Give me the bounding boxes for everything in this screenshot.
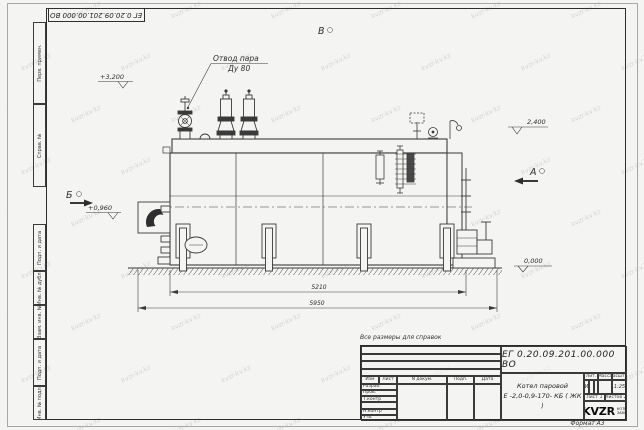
sign-col-dokum [397,384,447,422]
safety-valve-2 [240,89,258,139]
view-label-v: В [318,26,325,37]
drawing-sheet: kvzr-kv.kzkvzr-kv.kzkvzr-kv.kzkvzr-kv.kz… [0,0,644,430]
burner [138,202,170,264]
col-header-dokum: N докум. [397,376,447,384]
col-header-list: Лист [379,376,397,384]
reference-dimensions-note: Все размеры для справок [360,334,441,341]
title-block: Изм Лист N докум. Подп. Дата Разраб. Про… [360,345,626,420]
format-label: Формат А3 [545,420,630,427]
sheets-counter: Листов 2 [605,394,627,401]
view-label-a: А [529,167,537,178]
kvzr-logo-text: KVZR [584,405,615,418]
col-header-podp: Подп. [447,376,474,384]
dimension-overall-length: 5950 [309,300,324,307]
mass-value [598,380,612,394]
lit-header: Лит. [584,373,598,380]
logo-caption-line2: ЗАВОД РЗР [617,411,627,415]
col-header-izm: Изм [361,376,379,384]
change-row [361,354,501,362]
change-row [361,369,501,377]
steam-outlet-callout-line1: Отвод пара [213,54,259,63]
view-label-b: Б [66,190,73,201]
product-name-cell: Котел паровой Е -2,0-0,9-170- КБ ( ЖК ) [501,373,584,421]
product-name-line2: Е -2,0-0,9-170- КБ ( ЖК ) [502,392,583,412]
elevation-burner: +0,960 [88,204,112,212]
company-logo-cell: KVZR КОТЕЛЬНЫЙ ЗАВОД РЗР [584,401,627,421]
sheet-counter: Лист 1 [584,394,605,401]
sign-col-data [474,384,501,422]
change-row [361,346,501,354]
safety-valve-1 [217,89,235,139]
col-header-data: Дата [474,376,501,384]
manhole [185,237,207,253]
elevation-top: +3,200 [100,73,124,81]
steam-outlet-valve [178,96,192,139]
row-utv: Утв. [361,415,397,421]
deck-dome [200,134,210,139]
deck-fittings [410,113,462,139]
scale-value: 1:25 [612,380,627,394]
change-row [361,361,501,369]
scale-header: Масштаб [612,373,627,380]
product-name-line1: Котел паровой [502,382,583,392]
dimension-lines: 5210 5950 [138,270,497,312]
elevation-deck: 2,400 [527,118,546,126]
mass-header: Масса [598,373,612,380]
steam-outlet-callout-line2: Ду 80 [227,64,250,73]
dimension-body-length: 5210 [311,284,326,291]
sign-col-podp [447,384,474,422]
elevation-ground: 0,000 [524,257,543,265]
doc-number: ЕГ 0.20.09.201.00.000 ВО [501,346,627,373]
